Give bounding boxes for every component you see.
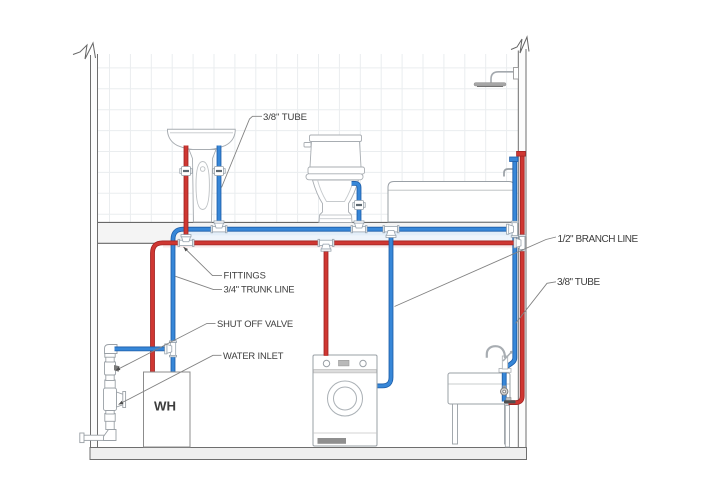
svg-text:WATER INLET: WATER INLET — [223, 350, 284, 361]
svg-text:3/8" TUBE: 3/8" TUBE — [263, 112, 307, 123]
svg-text:WH: WH — [154, 399, 176, 414]
svg-text:3/8" TUBE: 3/8" TUBE — [557, 277, 600, 288]
svg-text:FITTINGS: FITTINGS — [224, 270, 266, 281]
svg-text:3/4" TRUNK LINE: 3/4" TRUNK LINE — [224, 284, 295, 295]
svg-text:SHUT OFF VALVE: SHUT OFF VALVE — [217, 318, 293, 329]
svg-text:1/2" BRANCH LINE: 1/2" BRANCH LINE — [558, 234, 639, 245]
